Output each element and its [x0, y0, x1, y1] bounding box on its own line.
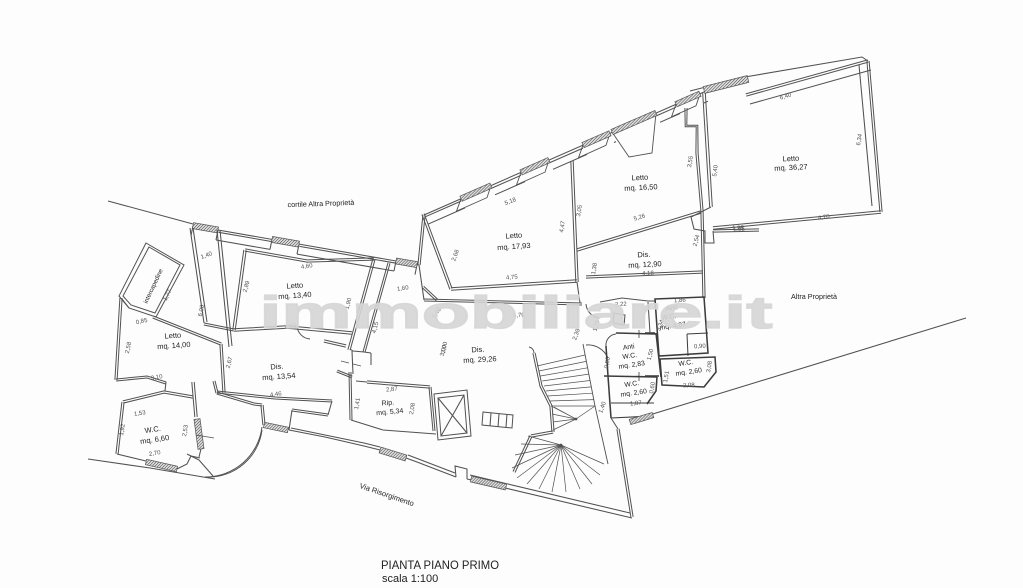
svg-text:Dis.: Dis.	[471, 345, 484, 355]
svg-text:Altra Proprietà: Altra Proprietà	[791, 292, 837, 301]
svg-text:Dis.: Dis.	[637, 250, 650, 260]
svg-text:Rip.: Rip.	[381, 399, 394, 407]
svg-text:0,90: 0,90	[694, 344, 707, 351]
svg-text:Dis.: Dis.	[270, 362, 284, 372]
svg-text:4,75: 4,75	[506, 274, 519, 281]
svg-text:mq. 16,50: mq. 16,50	[624, 182, 658, 193]
svg-text:mq. 29,26: mq. 29,26	[463, 354, 497, 365]
svg-text:Letto: Letto	[631, 173, 648, 183]
svg-text:1,95: 1,95	[732, 226, 744, 232]
svg-text:mq. 12,90: mq. 12,90	[628, 259, 662, 270]
svg-text:2,08: 2,08	[683, 383, 696, 390]
svg-text:1,87: 1,87	[630, 400, 643, 407]
svg-text:4,18: 4,18	[642, 271, 655, 277]
svg-text:immobiliare.it: immobiliare.it	[260, 287, 773, 338]
svg-text:scala 1:100: scala 1:100	[382, 573, 438, 585]
svg-text:mq. 36,27: mq. 36,27	[774, 162, 808, 173]
svg-text:Letto: Letto	[505, 230, 522, 240]
svg-text:2,87: 2,87	[386, 386, 399, 393]
svg-text:Letto: Letto	[164, 330, 181, 340]
svg-text:PIANTA PIANO PRIMO: PIANTA PIANO PRIMO	[381, 558, 499, 572]
